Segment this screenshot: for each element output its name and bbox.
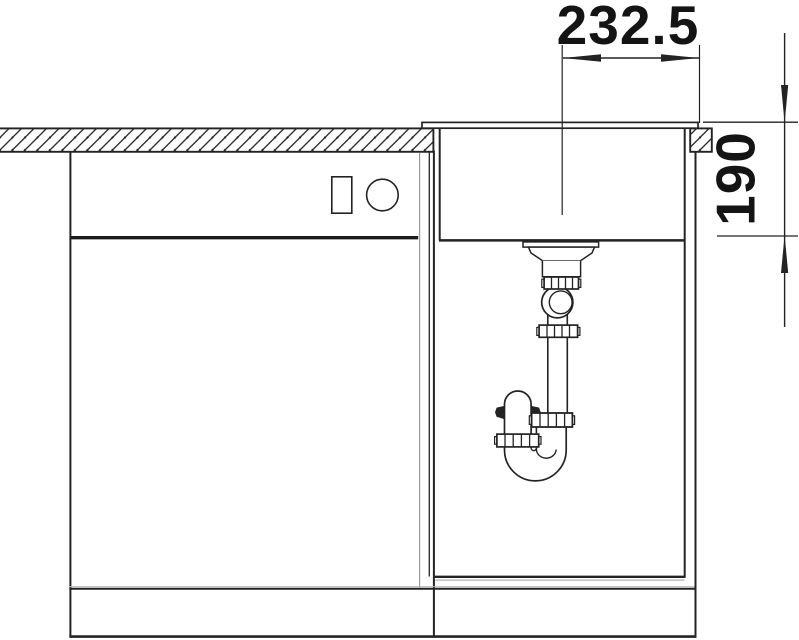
dimension-depth-label: 190 bbox=[705, 131, 767, 226]
coupling-nut-trap-inlet bbox=[529, 413, 574, 427]
dimension-width-label: 232.5 bbox=[557, 0, 700, 56]
control-knob-symbol bbox=[367, 179, 399, 211]
dimension-horizontal: 232.5 bbox=[557, 0, 700, 215]
arrowhead-up bbox=[781, 235, 788, 273]
arrowhead-down bbox=[781, 85, 788, 123]
technical-diagram-svg: 232.5 190 bbox=[0, 0, 799, 640]
sink bbox=[422, 122, 698, 576]
pipe-end-arc bbox=[536, 448, 556, 458]
countertop-section bbox=[0, 128, 712, 151]
sink-installation-drawing: 232.5 190 bbox=[0, 0, 799, 640]
wing-tab-left bbox=[495, 406, 505, 420]
strainer-cup bbox=[529, 247, 595, 277]
coupling-nut-top bbox=[542, 277, 581, 289]
dishwasher-front bbox=[70, 177, 418, 238]
control-display-symbol bbox=[332, 177, 352, 213]
coupling-nut-middle bbox=[537, 325, 580, 337]
countertop-left-slab bbox=[0, 128, 433, 151]
sink-rim bbox=[422, 122, 698, 128]
drain-assembly bbox=[523, 242, 599, 416]
base-cabinet bbox=[69, 151, 696, 638]
coupling-nut-riser bbox=[495, 434, 541, 447]
strainer-flange bbox=[523, 242, 599, 247]
p-trap bbox=[495, 391, 575, 481]
dimension-vertical: 190 bbox=[703, 33, 798, 327]
